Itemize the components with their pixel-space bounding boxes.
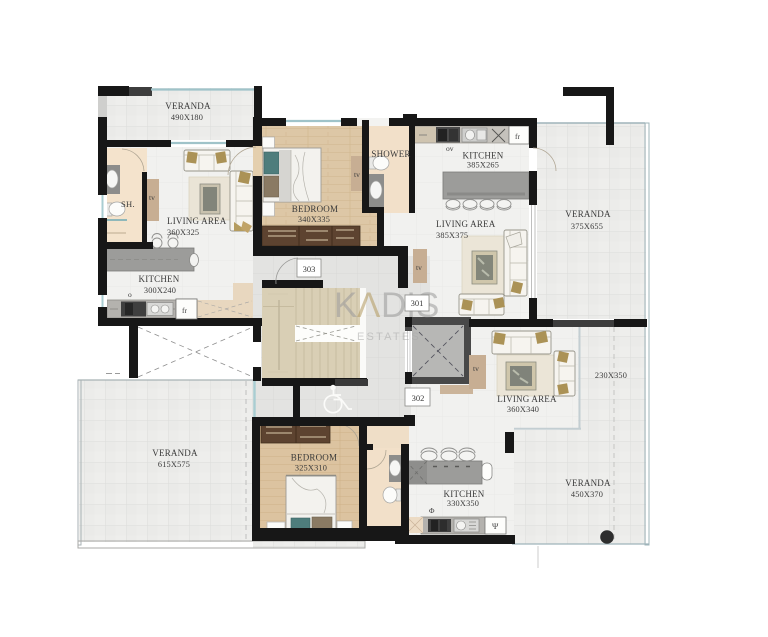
svg-text:301: 301 [411,298,424,308]
svg-text:BEDROOM: BEDROOM [291,453,337,463]
svg-text:330X350: 330X350 [447,499,479,508]
svg-text:375X655: 375X655 [571,222,603,231]
svg-text:SH.: SH. [121,199,135,209]
svg-text:LIVING AREA: LIVING AREA [436,219,496,229]
svg-text:tv: tv [416,263,422,272]
svg-text:230X350: 230X350 [595,371,627,380]
svg-text:o: o [128,290,132,299]
svg-text:VERANDA: VERANDA [565,478,611,488]
svg-text:tv: tv [473,364,479,373]
svg-text:VERANDA: VERANDA [565,209,611,219]
svg-text:fr: fr [515,132,520,141]
svg-text:fr: fr [182,306,187,315]
svg-text:Ψ: Ψ [492,521,499,531]
svg-text:LIVING AREA: LIVING AREA [167,216,227,226]
svg-text:615X575: 615X575 [158,460,190,469]
svg-text:VERANDA: VERANDA [152,448,198,458]
svg-text:SHOWER: SHOWER [371,149,410,159]
svg-text:tv: tv [149,193,155,202]
svg-text:450X370: 450X370 [571,490,603,499]
svg-text:360X340: 360X340 [507,405,539,414]
svg-text:303: 303 [303,264,316,274]
svg-text:K: K [334,286,357,325]
svg-text:KITCHEN: KITCHEN [139,274,180,284]
svg-text:Λ: Λ [357,286,381,325]
svg-text:tv: tv [354,170,360,179]
svg-text:360X325: 360X325 [167,228,199,237]
svg-text:490X180: 490X180 [171,113,203,122]
svg-text:BEDROOM: BEDROOM [292,204,338,214]
svg-text:KITCHEN: KITCHEN [463,151,504,161]
svg-text:385X375: 385X375 [436,231,468,240]
svg-text:LIVING AREA: LIVING AREA [497,394,557,404]
svg-text:VERANDA: VERANDA [165,101,211,111]
svg-text:KITCHEN: KITCHEN [444,489,485,499]
svg-text:ov: ov [446,144,454,153]
svg-text:Φ: Φ [429,506,435,515]
svg-text:340X335: 340X335 [298,215,330,224]
svg-text:302: 302 [412,393,425,403]
svg-text:ESTATES: ESTATES [357,331,421,343]
svg-text:385X265: 385X265 [467,161,499,170]
svg-text:325X310: 325X310 [295,464,327,473]
svg-text:300X240: 300X240 [144,286,176,295]
